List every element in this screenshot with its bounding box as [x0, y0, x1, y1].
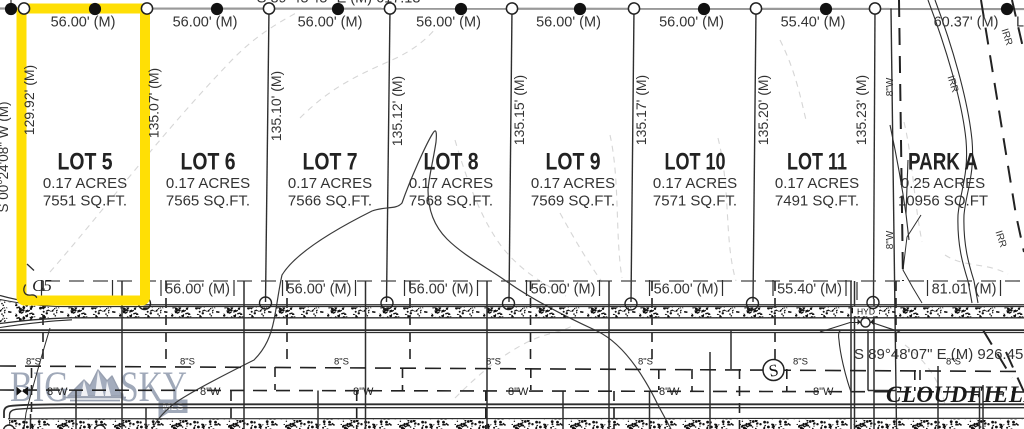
svg-text:C5: C5 [32, 276, 52, 295]
svg-text:55.40' (M): 55.40' (M) [777, 282, 842, 298]
svg-text:0.17 ACRES: 0.17 ACRES [409, 175, 493, 192]
svg-text:7571 SQ.FT.: 7571 SQ.FT. [653, 193, 737, 210]
svg-text:8"S: 8"S [638, 357, 653, 368]
svg-text:8"W: 8"W [353, 386, 374, 398]
svg-text:S 89°45'45" E (M) 617.18': S 89°45'45" E (M) 617.18' [257, 0, 424, 7]
svg-text:CLOUDFIELD: CLOUDFIELD [886, 382, 1024, 407]
svg-text:8"W: 8"W [885, 77, 896, 96]
svg-text:LOT 10: LOT 10 [665, 149, 726, 176]
svg-text:135.17' (M): 135.17' (M) [633, 75, 649, 145]
svg-text:56.00' (M): 56.00' (M) [659, 15, 724, 31]
svg-text:56.00' (M): 56.00' (M) [51, 15, 116, 31]
svg-text:S 89°48'07" E (M) 926.45': S 89°48'07" E (M) 926.45' [854, 346, 1024, 363]
svg-text:8"S: 8"S [334, 357, 349, 368]
svg-text:56.00' (M): 56.00' (M) [409, 282, 474, 298]
svg-text:LOT 7: LOT 7 [303, 149, 358, 176]
svg-text:56.00' (M): 56.00' (M) [531, 282, 596, 298]
svg-text:135.20' (M): 135.20' (M) [755, 75, 771, 145]
svg-text:7551 SQ.FT.: 7551 SQ.FT. [43, 193, 127, 210]
svg-text:81.01' (M): 81.01' (M) [932, 282, 997, 298]
svg-text:7491 SQ.FT.: 7491 SQ.FT. [775, 193, 859, 210]
svg-text:7568 SQ.FT.: 7568 SQ.FT. [409, 193, 493, 210]
svg-text:LOT 11: LOT 11 [787, 149, 847, 176]
svg-text:7566 SQ.FT.: 7566 SQ.FT. [288, 193, 372, 210]
svg-text:8"W: 8"W [813, 386, 834, 398]
svg-text:8"W: 8"W [47, 386, 68, 398]
svg-text:PARK A: PARK A [908, 149, 978, 176]
svg-text:8"S: 8"S [486, 357, 501, 368]
svg-text:0.17 ACRES: 0.17 ACRES [531, 175, 615, 192]
svg-text:135.10' (M): 135.10' (M) [268, 71, 284, 141]
svg-text:129.92' (M): 129.92' (M) [21, 65, 37, 135]
svg-text:8"W: 8"W [200, 386, 221, 398]
svg-text:135.12' (M): 135.12' (M) [389, 76, 405, 146]
svg-text:56.00' (M): 56.00' (M) [416, 15, 481, 31]
svg-text:LOT 5: LOT 5 [58, 149, 113, 176]
svg-text:LO: LO [1016, 15, 1024, 31]
svg-text:56.00' (M): 56.00' (M) [298, 15, 363, 31]
svg-text:S 00°24'08" W (M): S 00°24'08" W (M) [0, 101, 11, 212]
svg-text:56.00' (M): 56.00' (M) [287, 282, 352, 298]
svg-text:135.07' (M): 135.07' (M) [146, 68, 162, 138]
svg-text:8"S: 8"S [26, 357, 41, 368]
svg-text:56.00' (M): 56.00' (M) [165, 282, 230, 298]
svg-text:8"S: 8"S [793, 357, 808, 368]
svg-text:56.00' (M): 56.00' (M) [654, 282, 719, 298]
svg-text:LOT 8: LOT 8 [424, 149, 479, 176]
svg-text:55.40' (M): 55.40' (M) [781, 15, 846, 31]
svg-text:0.17 ACRES: 0.17 ACRES [166, 175, 250, 192]
svg-text:LOT 9: LOT 9 [546, 149, 601, 176]
svg-text:0.17 ACRES: 0.17 ACRES [43, 175, 127, 192]
svg-text:10956 SQ.FT: 10956 SQ.FT [898, 193, 988, 210]
svg-text:135.15' (M): 135.15' (M) [511, 75, 527, 145]
svg-text:60.37' (M): 60.37' (M) [934, 15, 999, 31]
svg-text:8"S: 8"S [180, 357, 195, 368]
svg-text:0.17 ACRES: 0.17 ACRES [288, 175, 372, 192]
svg-text:0.25 ACRES: 0.25 ACRES [901, 175, 985, 192]
svg-text:8"W: 8"W [659, 386, 680, 398]
svg-text:LOT 6: LOT 6 [181, 149, 236, 176]
svg-text:8"W: 8"W [885, 230, 896, 249]
svg-text:8"W: 8"W [508, 386, 529, 398]
svg-text:7565 SQ.FT.: 7565 SQ.FT. [166, 193, 250, 210]
svg-text:56.00' (M): 56.00' (M) [536, 15, 601, 31]
svg-text:7569 SQ.FT.: 7569 SQ.FT. [531, 193, 615, 210]
svg-text:135.23' (M): 135.23' (M) [853, 75, 869, 145]
svg-text:0.17 ACRES: 0.17 ACRES [653, 175, 737, 192]
svg-text:56.00' (M): 56.00' (M) [173, 15, 238, 31]
svg-text:0.17 ACRES: 0.17 ACRES [775, 175, 859, 192]
